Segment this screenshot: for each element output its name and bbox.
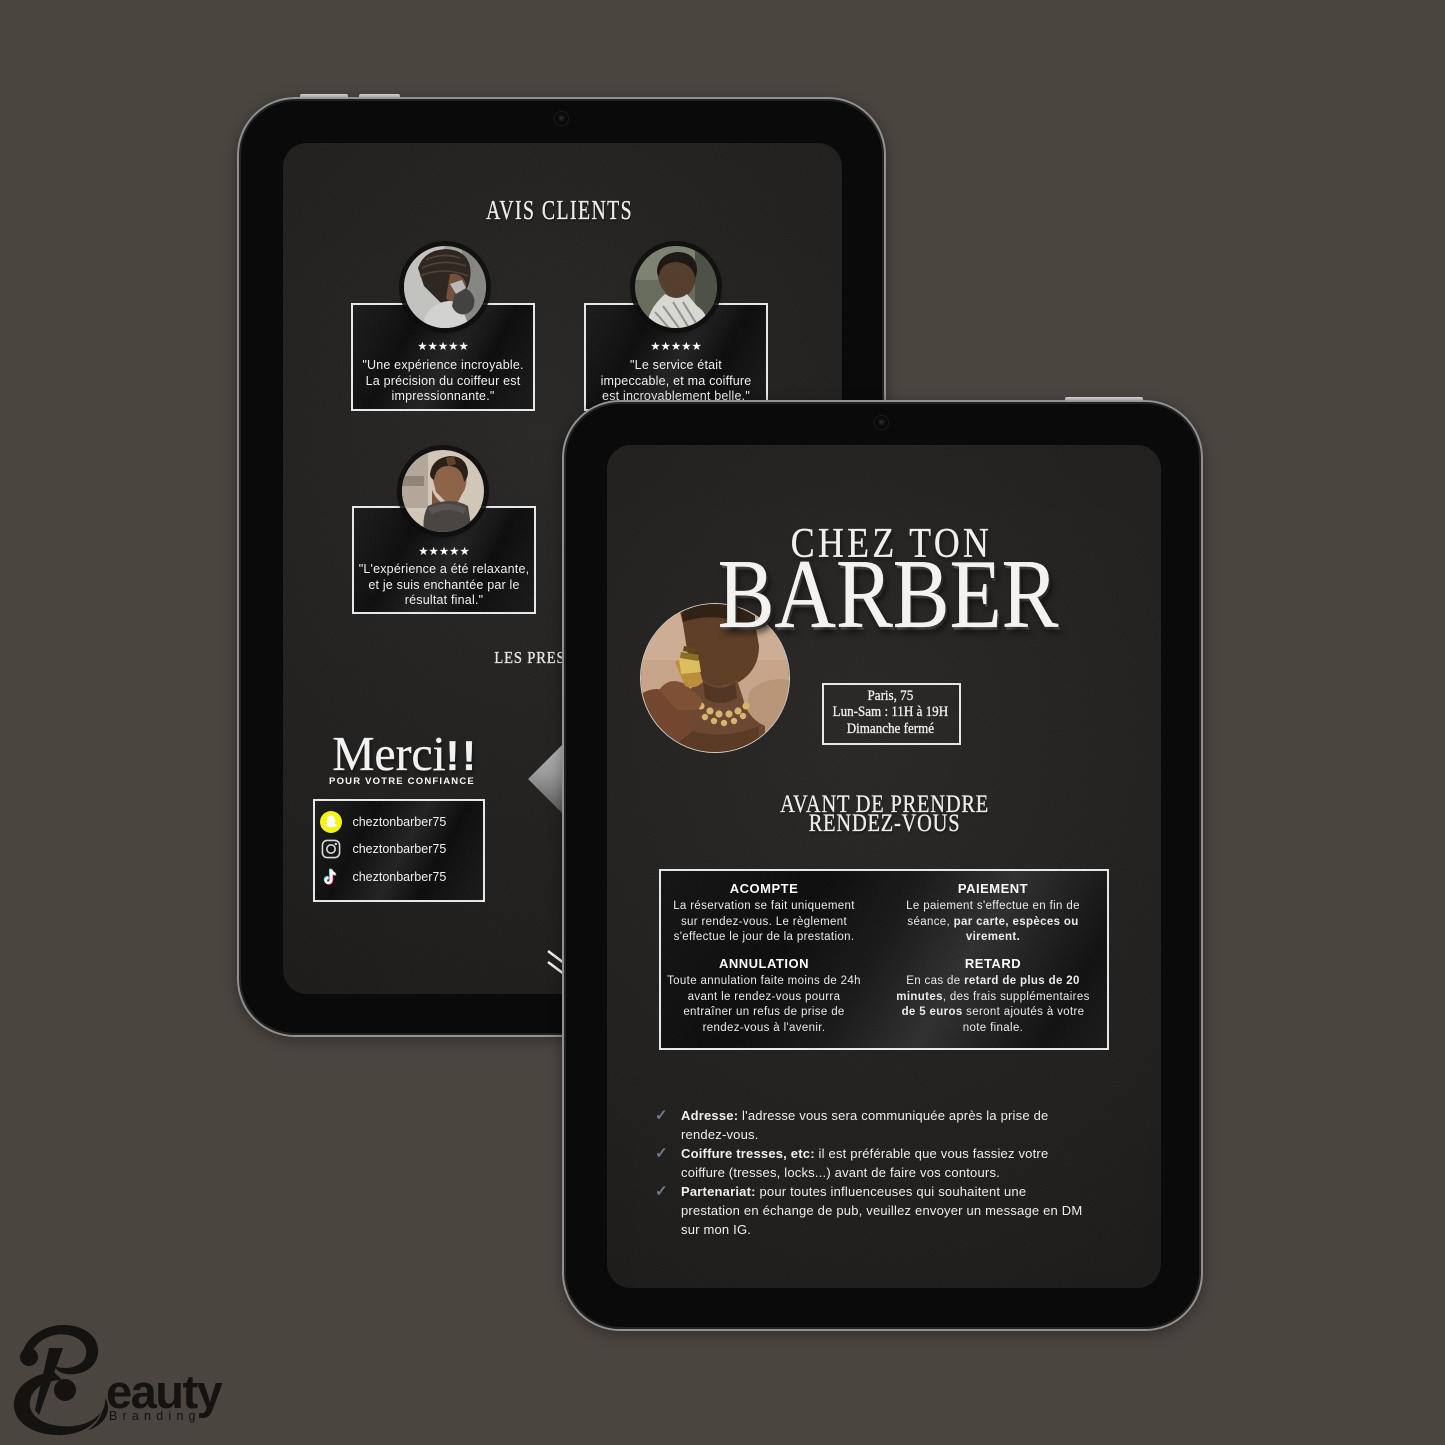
svg-text:Branding: Branding (109, 1409, 201, 1423)
